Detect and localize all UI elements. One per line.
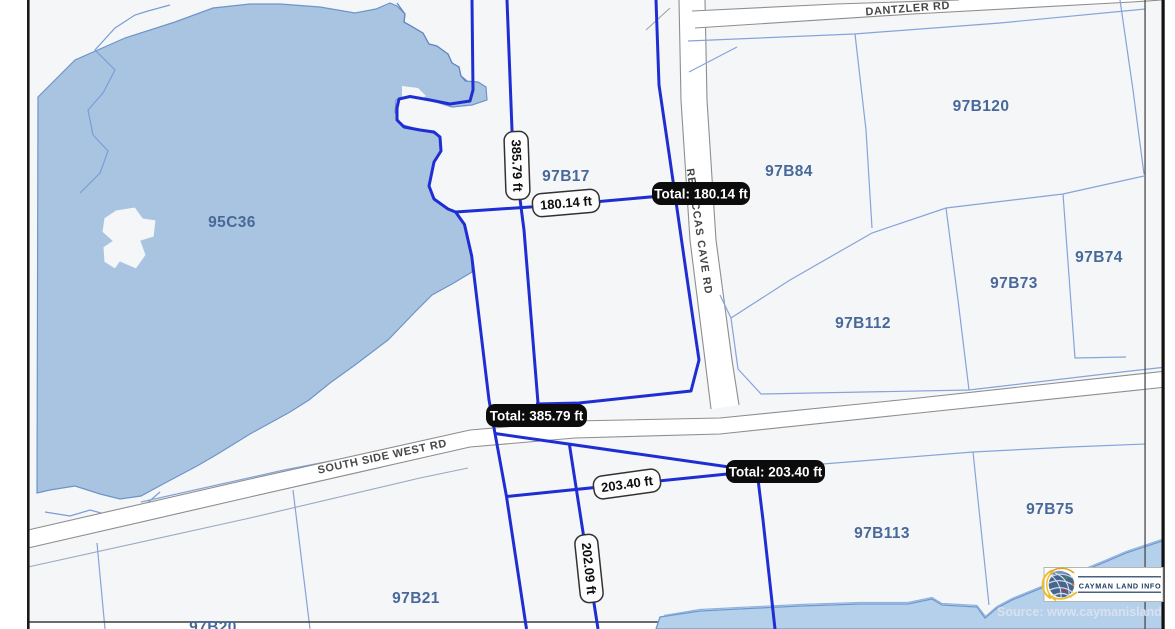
svg-text:Total: 203.40 ft: Total: 203.40 ft [729, 464, 823, 479]
svg-text:Total: 180.14 ft: Total: 180.14 ft [654, 186, 748, 201]
svg-text:Total: 385.79 ft: Total: 385.79 ft [490, 408, 584, 423]
svg-text:CAYMAN LAND INFO: CAYMAN LAND INFO [1079, 582, 1161, 591]
svg-text:385.79 ft: 385.79 ft [509, 139, 526, 192]
svg-text:97B120: 97B120 [953, 98, 1010, 115]
svg-text:97B84: 97B84 [765, 163, 813, 180]
svg-text:97B75: 97B75 [1026, 501, 1074, 518]
svg-text:97B113: 97B113 [854, 525, 910, 542]
svg-text:97B21: 97B21 [392, 590, 440, 607]
svg-text:95C36: 95C36 [208, 214, 256, 231]
svg-text:Source: www.caymanislandslandi: Source: www.caymanislandslandinfo.ky [997, 605, 1175, 619]
svg-text:97B73: 97B73 [990, 275, 1038, 292]
svg-text:97B17: 97B17 [542, 168, 590, 185]
svg-text:97B74: 97B74 [1075, 249, 1123, 266]
svg-text:97B112: 97B112 [835, 315, 891, 332]
svg-text:97B20: 97B20 [189, 619, 237, 629]
